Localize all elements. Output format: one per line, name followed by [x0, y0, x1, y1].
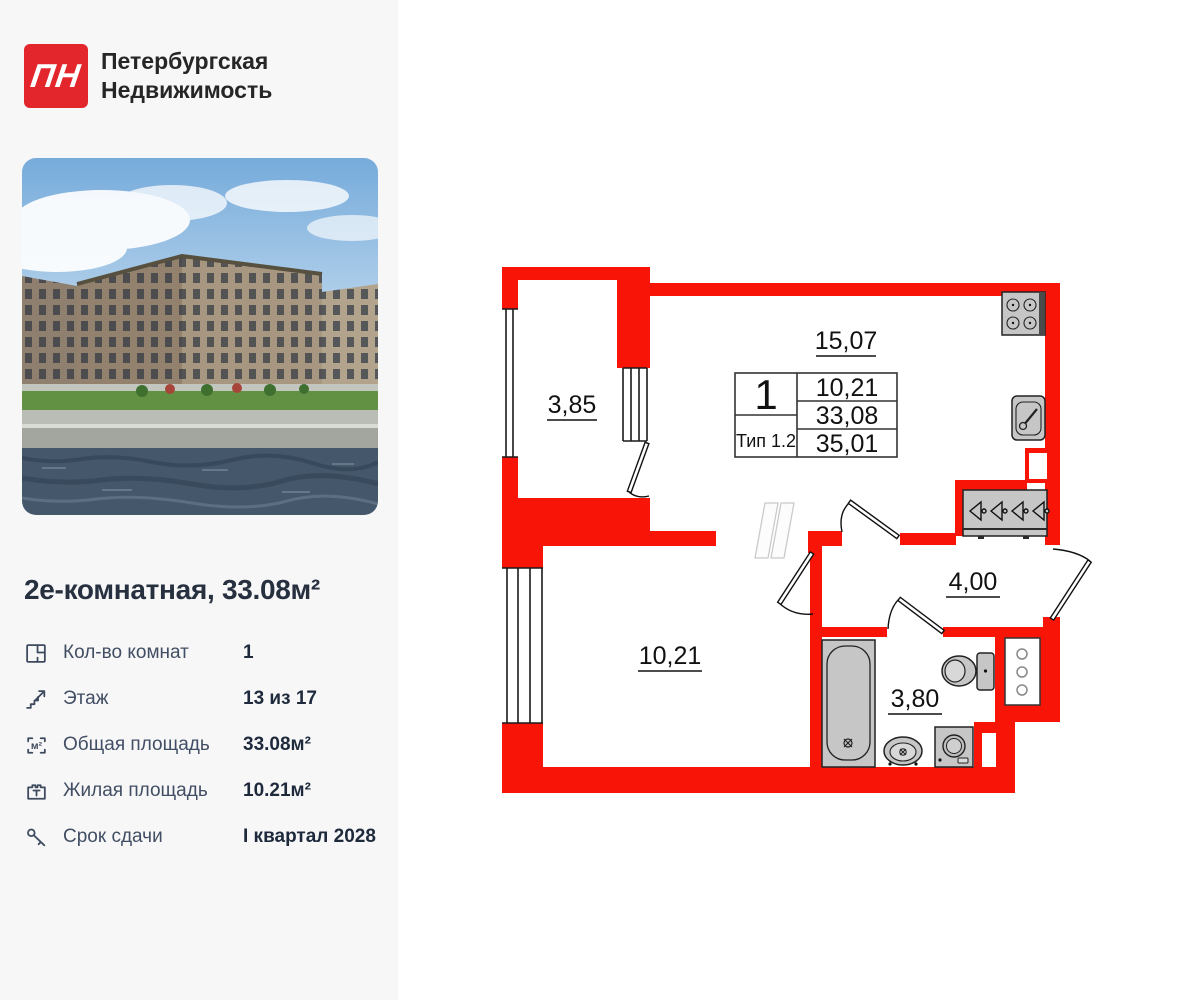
stove-icon: [1002, 292, 1045, 335]
detail-value: 33.08м²: [243, 734, 311, 756]
building-photo-render: [22, 158, 378, 515]
bathroom-door: [888, 597, 944, 633]
detail-label: Кол-во комнат: [63, 642, 231, 664]
svg-text:м²: м²: [31, 741, 43, 752]
toilet-icon: [942, 653, 994, 690]
stamp-living-area: 10,21: [816, 374, 879, 402]
detail-label: Жилая площадь: [63, 780, 231, 802]
wardrobe-icon: [963, 490, 1049, 539]
sliding-partition-ghost: [755, 503, 794, 558]
balcony-door: [627, 442, 649, 497]
detail-row-total-area: м² Общая площадь 33.08м²: [24, 722, 380, 768]
total-area-icon: м²: [24, 732, 51, 759]
brand-name-line1: Петербургская: [101, 47, 272, 76]
stamp-table: 1 Тип 1.2 10,21 33,08 35,01: [735, 371, 897, 458]
detail-row-completion: Срок сдачи I квартал 2028: [24, 814, 380, 860]
wall-notch: [982, 733, 996, 767]
detail-row-rooms: Кол-во комнат 1: [24, 630, 380, 676]
detail-row-floor: Этаж 13 из 17: [24, 676, 380, 722]
detail-label: Общая площадь: [63, 734, 231, 756]
bathtub-icon: [822, 640, 875, 767]
detail-value: 1: [243, 642, 254, 664]
building-photo[interactable]: [22, 158, 378, 515]
detail-label: Этаж: [63, 688, 231, 710]
entrance-door: [1050, 549, 1091, 620]
detail-value: I квартал 2028: [243, 826, 376, 848]
detail-label: Срок сдачи: [63, 826, 231, 848]
detail-value: 10.21м²: [243, 780, 311, 802]
bath-sink-icon: [884, 737, 922, 766]
stamp-total-area: 33,08: [816, 402, 879, 430]
key-icon: [24, 824, 51, 851]
brand-logo-text: ПН: [29, 57, 84, 95]
stamp-total-with-summer: 35,01: [816, 430, 879, 458]
detail-row-living-area: Жилая площадь 10.21м²: [24, 768, 380, 814]
brand-name: Петербургская Недвижимость: [101, 47, 272, 105]
room-label-balcony: 3,85: [548, 391, 597, 419]
room-label-bathroom: 3,80: [891, 685, 940, 713]
wall-niche: [1029, 453, 1047, 479]
details-list: Кол-во комнат 1 Этаж 13 из 17 м² Общая п…: [24, 630, 380, 860]
rooms-icon: [24, 640, 51, 667]
listing-title: 2е-комнатная, 33.08м²: [24, 574, 384, 606]
stamp-type: Тип 1.2: [736, 431, 796, 451]
floor-plan: 1 Тип 1.2 10,21 33,08 35,01 15,07 3,85 1…: [500, 263, 1100, 793]
living-hall-door: [841, 500, 899, 539]
floor-icon: [24, 686, 51, 713]
brand-logo[interactable]: ПН: [24, 44, 88, 108]
brand-name-line2: Недвижимость: [101, 76, 272, 105]
room-label-hallway: 4,00: [949, 568, 998, 596]
bedroom-window: [502, 568, 543, 723]
balcony-left-window: [502, 309, 518, 457]
balcony-door-window: [621, 368, 650, 441]
room-label-living: 15,07: [815, 327, 878, 355]
ground: [22, 383, 378, 448]
sidebar: ПН Петербургская Недвижимость: [0, 0, 398, 1000]
kitchen-sink-icon: [1012, 396, 1045, 440]
stamp-rooms: 1: [754, 371, 777, 418]
water: [22, 448, 378, 515]
shaft-icon: [1005, 638, 1040, 705]
detail-value: 13 из 17: [243, 688, 317, 710]
room-label-bedroom: 10,21: [639, 642, 702, 670]
brand: ПН Петербургская Недвижимость: [24, 44, 272, 108]
bedroom-door: [778, 552, 814, 614]
washing-machine-icon: [935, 727, 973, 767]
living-area-icon: [24, 778, 51, 805]
